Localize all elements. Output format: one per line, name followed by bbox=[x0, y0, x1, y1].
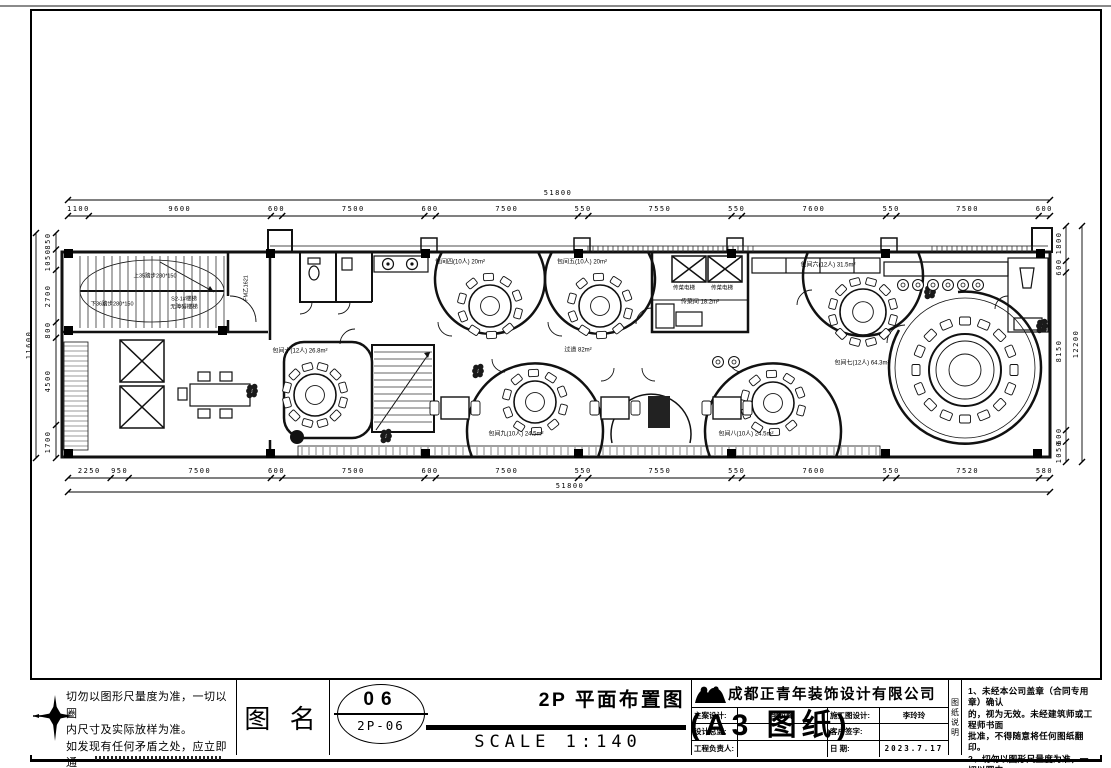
note-line: 1、未经本公司盖章（合同专用章）确认 bbox=[968, 686, 1097, 709]
title-strip: 切勿以图形尺量度为准，一切以圈内尺寸及实际放样为准。如发现有任何矛盾之处，应立即… bbox=[30, 678, 1102, 755]
paper-size-stamp: (A3 图纸) bbox=[690, 700, 852, 744]
note-line: 切勿以图形尺量度为准，一切以圈 bbox=[66, 689, 232, 722]
notes-right-box: 1、未经本公司盖章（合同专用章）确认的，视为无效。未经建筑师或工程师书面批准，不… bbox=[962, 680, 1102, 755]
notes-right-text: 1、未经本公司盖章（合同专用章）确认的，视为无效。未经建筑师或工程师书面批准，不… bbox=[968, 686, 1097, 768]
drawing-sheet: 1100960060075006007500550755055076005507… bbox=[0, 0, 1111, 768]
drawing-title: 2P 平面布置图 bbox=[440, 683, 685, 712]
field-value: 李玲玲 bbox=[880, 708, 948, 724]
note-line: 2、切勿以图形尺量度为准，一切以圈内 bbox=[968, 754, 1097, 768]
title-underline bbox=[426, 725, 686, 730]
sheet-name-box: 图 名 bbox=[237, 680, 330, 755]
notes-left-box: 切勿以图形尺量度为准，一切以圈内尺寸及实际放样为准。如发现有任何矛盾之处，应立即… bbox=[30, 680, 237, 755]
sheet-border-frame bbox=[30, 9, 1102, 762]
north-compass-icon bbox=[32, 694, 74, 742]
sheet-notes-side-label: 图纸说明 bbox=[948, 680, 961, 755]
note-line: 批准，不得随意将任何图纸翻印。 bbox=[968, 731, 1097, 754]
sheet-top-rule bbox=[0, 5, 1111, 7]
drawing-scale: SCALE 1:140 bbox=[430, 732, 686, 752]
fine-print-bar bbox=[95, 756, 223, 760]
note-line: 内尺寸及实际放样为准。 bbox=[66, 722, 232, 739]
sheet-number: 06 bbox=[338, 689, 424, 711]
date-value: 2023.7.17 bbox=[880, 741, 948, 757]
bubble-divider bbox=[334, 713, 428, 715]
drawing-title-box: 06 2P-06 2P 平面布置图 SCALE 1:140 bbox=[330, 680, 692, 755]
sheet-code: 2P-06 bbox=[338, 718, 424, 733]
field-value bbox=[880, 724, 948, 740]
sheet-number-bubble: 06 2P-06 bbox=[337, 684, 425, 744]
sheet-name-label: 图 名 bbox=[244, 699, 321, 736]
note-line: 的，视为无效。未经建筑师或工程师书面 bbox=[968, 709, 1097, 732]
note-line: 如发现有任何矛盾之处，应立即通 bbox=[66, 739, 232, 768]
